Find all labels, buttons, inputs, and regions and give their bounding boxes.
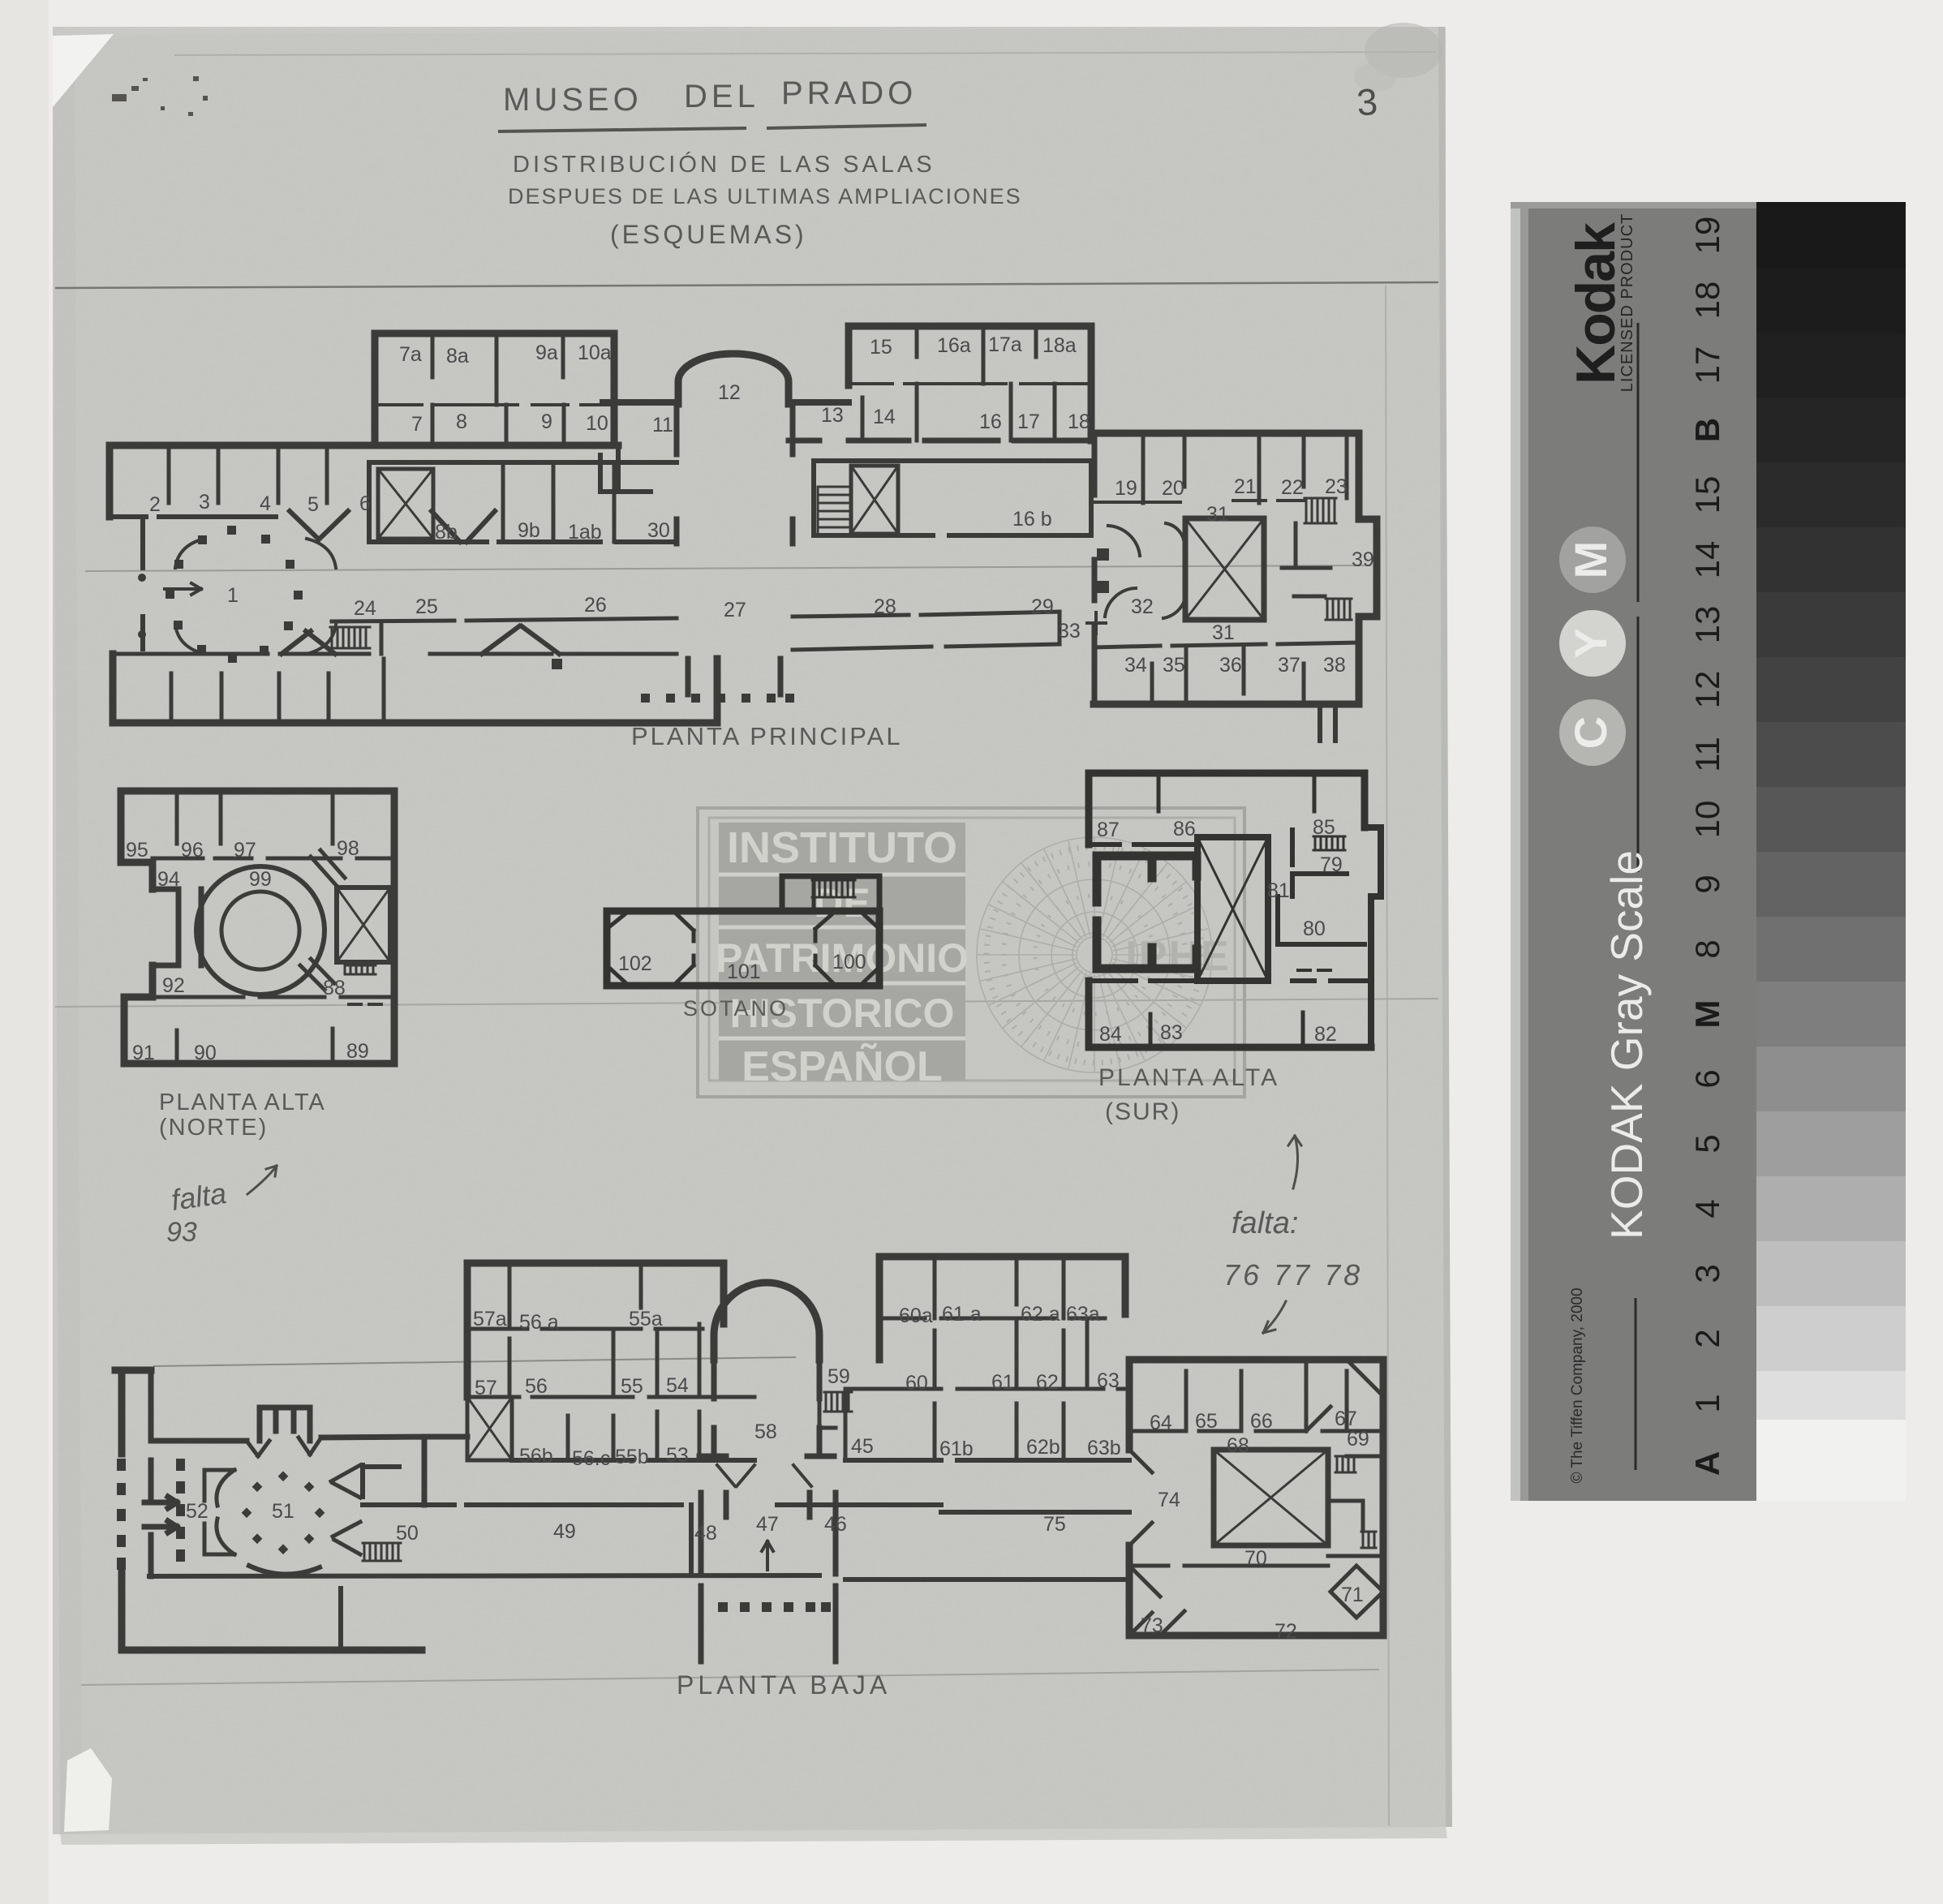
svg-text:27: 27 [724,599,746,621]
svg-text:55a: 55a [629,1308,663,1330]
svg-text:18: 18 [1068,410,1090,433]
svg-text:54: 54 [666,1374,689,1397]
svg-text:2: 2 [1688,1329,1726,1347]
svg-text:86: 86 [1173,818,1196,840]
svg-text:56.c: 56.c [572,1447,610,1470]
svg-text:4: 4 [1688,1199,1726,1218]
svg-text:96: 96 [181,839,204,862]
svg-text:52: 52 [186,1500,208,1523]
svg-text:PLANTA PRINCIPAL: PLANTA PRINCIPAL [631,722,903,750]
svg-text:85: 85 [1313,816,1335,839]
svg-text:45: 45 [851,1435,874,1458]
svg-text:16: 16 [979,410,1002,433]
svg-text:A: A [1688,1451,1726,1476]
svg-text:17: 17 [1688,346,1726,385]
svg-text:94: 94 [157,868,180,891]
svg-text:90: 90 [194,1042,217,1064]
svg-text:MUSEO: MUSEO [503,82,643,118]
svg-text:72: 72 [1275,1620,1297,1643]
svg-text:31: 31 [1206,503,1229,526]
svg-text:34: 34 [1124,654,1147,677]
svg-text:B: B [1688,418,1726,442]
svg-text:18: 18 [1688,282,1726,320]
svg-text:25: 25 [415,595,438,618]
svg-text:DISTRIBUCIÓN DE LAS SALAS: DISTRIBUCIÓN DE LAS SALAS [513,151,935,178]
svg-text:© The Tiffen Company, 2000: © The Tiffen Company, 2000 [1569,1287,1586,1483]
svg-text:91: 91 [132,1042,155,1064]
svg-text:83: 83 [1160,1021,1183,1044]
svg-text:8b: 8b [435,521,458,544]
svg-text:13: 13 [821,404,844,427]
svg-text:10a: 10a [578,342,612,364]
svg-text:(SUR): (SUR) [1105,1098,1180,1125]
svg-text:8: 8 [456,410,467,433]
svg-text:53: 53 [666,1444,689,1467]
svg-text:59: 59 [827,1365,850,1388]
svg-text:81: 81 [1267,879,1290,902]
svg-text:80: 80 [1303,918,1326,940]
svg-text:102: 102 [618,952,652,975]
svg-text:63: 63 [1097,1369,1120,1392]
svg-text:62 a: 62 a [1021,1303,1060,1326]
svg-text:73: 73 [1141,1614,1163,1637]
svg-text:56: 56 [525,1375,548,1398]
svg-text:39: 39 [1352,548,1374,571]
svg-text:6: 6 [359,492,371,515]
svg-text:51: 51 [272,1500,294,1523]
svg-text:61 a: 61 a [942,1303,982,1326]
svg-text:12: 12 [718,381,741,404]
svg-text:48: 48 [694,1522,717,1545]
svg-text:55b: 55b [615,1446,649,1468]
svg-text:8: 8 [1688,939,1726,958]
svg-text:24: 24 [354,597,376,620]
svg-text:60a: 60a [899,1304,933,1327]
svg-text:INSTITUTO: INSTITUTO [727,823,957,872]
svg-text:92: 92 [162,974,185,997]
svg-text:KODAK Gray Scale: KODAK Gray Scale [1601,850,1652,1240]
svg-text:Kodak: Kodak [1565,222,1627,385]
svg-text:SOTANO: SOTANO [683,996,789,1021]
svg-text:9: 9 [541,410,552,433]
svg-text:ESPAÑOL: ESPAÑOL [742,1042,943,1090]
svg-text:29: 29 [1031,595,1054,618]
svg-text:23: 23 [1325,475,1348,498]
svg-text:37: 37 [1278,654,1300,677]
svg-text:67: 67 [1335,1408,1357,1430]
svg-text:28: 28 [874,595,896,618]
svg-text:64: 64 [1150,1412,1172,1434]
svg-text:95: 95 [126,839,148,862]
svg-text:36: 36 [1219,654,1242,677]
svg-text:35: 35 [1163,654,1185,677]
svg-text:falta:: falta: [1232,1206,1298,1240]
svg-text:57: 57 [475,1377,497,1399]
svg-text:56b: 56b [519,1445,553,1468]
svg-text:33: 33 [1058,620,1081,643]
svg-text:LICENSED PRODUCT: LICENSED PRODUCT [1618,213,1636,392]
svg-text:15: 15 [870,336,892,359]
svg-text:14: 14 [1688,541,1726,579]
svg-text:75: 75 [1043,1513,1066,1536]
svg-text:1ab: 1ab [568,521,602,544]
svg-text:8a: 8a [446,345,469,367]
svg-text:14: 14 [873,406,896,428]
svg-text:61b: 61b [939,1438,974,1460]
svg-text:61: 61 [991,1371,1014,1394]
svg-text:22: 22 [1281,476,1304,499]
svg-text:PLANTA ALTA: PLANTA ALTA [1098,1064,1279,1091]
svg-text:4: 4 [260,492,271,515]
svg-text:16a: 16a [937,334,971,357]
svg-text:87: 87 [1097,819,1120,841]
svg-text:12: 12 [1688,671,1726,709]
svg-text:13: 13 [1688,606,1726,644]
svg-text:10: 10 [1688,801,1726,839]
svg-text:1: 1 [1688,1394,1726,1412]
svg-text:56 a: 56 a [519,1311,559,1334]
svg-text:C: C [1565,716,1616,749]
svg-text:62b: 62b [1026,1436,1060,1459]
svg-text:58: 58 [754,1420,777,1443]
svg-text:5: 5 [307,493,319,516]
svg-text:63b: 63b [1087,1437,1121,1459]
svg-text:Y: Y [1565,628,1616,658]
svg-text:101: 101 [727,961,761,983]
svg-text:70: 70 [1244,1547,1267,1570]
svg-text:7a: 7a [399,343,422,366]
svg-text:16 b: 16 b [1012,508,1052,531]
svg-text:(ESQUEMAS): (ESQUEMAS) [610,220,807,249]
svg-text:82: 82 [1314,1023,1337,1046]
svg-text:17a: 17a [988,333,1022,356]
svg-text:98: 98 [337,837,359,860]
svg-text:17: 17 [1017,410,1040,433]
svg-text:18a: 18a [1042,334,1077,357]
svg-text:PLANTA BAJA: PLANTA BAJA [677,1670,891,1700]
svg-text:1: 1 [227,584,239,607]
svg-text:19: 19 [1688,217,1726,255]
svg-text:6: 6 [1688,1069,1726,1088]
svg-text:15: 15 [1688,476,1726,514]
svg-text:9a: 9a [535,342,558,364]
svg-text:31: 31 [1212,621,1235,644]
svg-text:68: 68 [1227,1434,1249,1457]
svg-text:M: M [1565,541,1616,579]
svg-text:62: 62 [1036,1371,1059,1394]
svg-text:26: 26 [584,594,607,617]
svg-text:47: 47 [756,1513,779,1536]
svg-text:69: 69 [1347,1428,1369,1451]
svg-text:50: 50 [396,1522,419,1545]
svg-text:9b: 9b [518,519,540,542]
svg-text:55: 55 [621,1375,643,1398]
svg-text:71: 71 [1341,1584,1364,1606]
svg-text:5: 5 [1688,1134,1726,1153]
svg-text:97: 97 [234,839,256,862]
svg-text:100: 100 [832,951,866,973]
svg-text:79: 79 [1320,853,1343,876]
svg-text:19: 19 [1115,477,1137,500]
svg-text:57a: 57a [473,1308,507,1330]
svg-text:3: 3 [1356,80,1379,124]
svg-text:2: 2 [149,493,161,516]
svg-text:9: 9 [1688,875,1726,893]
svg-text:PRADO: PRADO [781,75,917,111]
svg-text:11: 11 [652,414,673,436]
svg-text:60: 60 [905,1372,928,1395]
svg-text:3: 3 [199,491,210,514]
svg-text:38: 38 [1323,654,1346,677]
svg-text:49: 49 [553,1520,576,1543]
svg-text:46: 46 [824,1513,847,1536]
svg-text:89: 89 [346,1040,369,1063]
svg-text:74: 74 [1158,1489,1180,1511]
svg-text:21: 21 [1234,475,1257,498]
svg-text:88: 88 [323,977,346,999]
svg-text:DESPUES DE LAS ULTIMAS AMPLIAC: DESPUES DE LAS ULTIMAS AMPLIACIONES [508,184,1022,208]
svg-text:10: 10 [586,412,608,435]
svg-text:84: 84 [1099,1023,1122,1046]
svg-text:32: 32 [1131,595,1154,618]
svg-text:(NORTE): (NORTE) [159,1115,268,1141]
svg-text:66: 66 [1250,1410,1273,1433]
svg-text:93: 93 [166,1217,197,1248]
svg-text:PLANTA ALTA: PLANTA ALTA [159,1090,326,1115]
svg-text:DEL: DEL [684,79,759,114]
svg-text:3: 3 [1688,1264,1726,1283]
svg-text:99: 99 [249,868,272,891]
svg-text:76 77 78: 76 77 78 [1223,1258,1363,1292]
svg-text:30: 30 [647,519,670,542]
svg-text:63a: 63a [1066,1303,1100,1326]
svg-text:11: 11 [1688,737,1726,772]
svg-text:7: 7 [411,413,423,436]
svg-text:20: 20 [1162,477,1184,500]
svg-text:M: M [1688,1000,1726,1029]
svg-text:65: 65 [1195,1410,1218,1433]
